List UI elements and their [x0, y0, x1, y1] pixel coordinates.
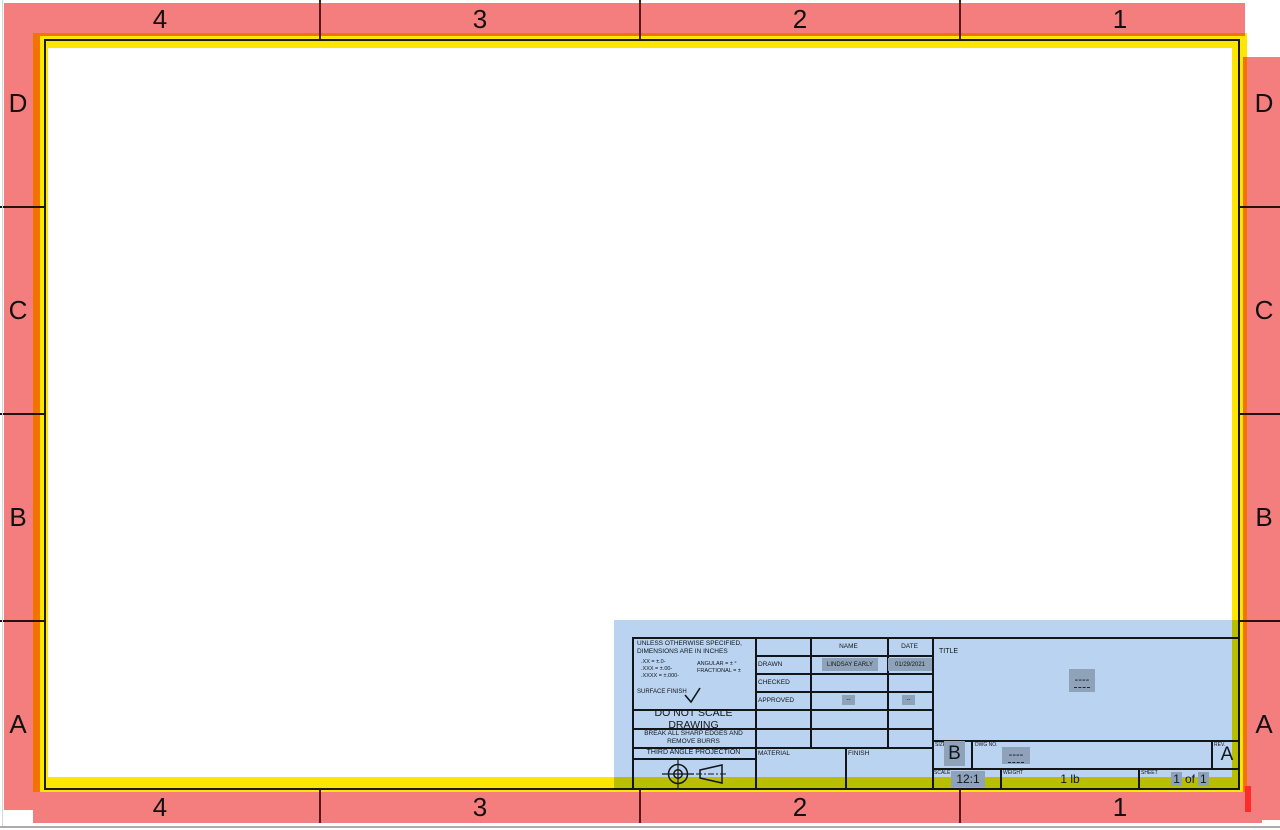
- margin-band-right[interactable]: [1243, 57, 1280, 820]
- zone-label-top: 4: [140, 3, 180, 35]
- zone-label-right: C: [1244, 294, 1280, 326]
- zone-label-bottom: 1: [1100, 791, 1140, 823]
- zone-label-bottom: 3: [460, 791, 500, 823]
- zone-label-top: 2: [780, 3, 820, 35]
- drawing-sheet: 4 3 2 1 4 3 2 1 D C B A D C B A UNLESS O…: [0, 0, 1280, 830]
- margin-band-top[interactable]: [4, 3, 1245, 36]
- zone-label-right: D: [1244, 87, 1280, 119]
- window-left-edge: [2, 0, 3, 826]
- titleblock-selection-highlight[interactable]: [614, 620, 1240, 790]
- window-bottom-edge: [0, 826, 1280, 828]
- zone-label-right: A: [1244, 708, 1280, 740]
- zone-label-right: B: [1244, 501, 1280, 533]
- zone-label-top: 1: [1100, 3, 1140, 35]
- zone-label-top: 3: [460, 3, 500, 35]
- border-corner-handle[interactable]: [1245, 786, 1251, 812]
- zone-label-bottom: 4: [140, 791, 180, 823]
- zone-tick: [319, 790, 321, 823]
- margin-band-bottom[interactable]: [33, 792, 1262, 823]
- zone-tick: [959, 790, 961, 823]
- zone-label-bottom: 2: [780, 791, 820, 823]
- zone-tick: [639, 790, 641, 823]
